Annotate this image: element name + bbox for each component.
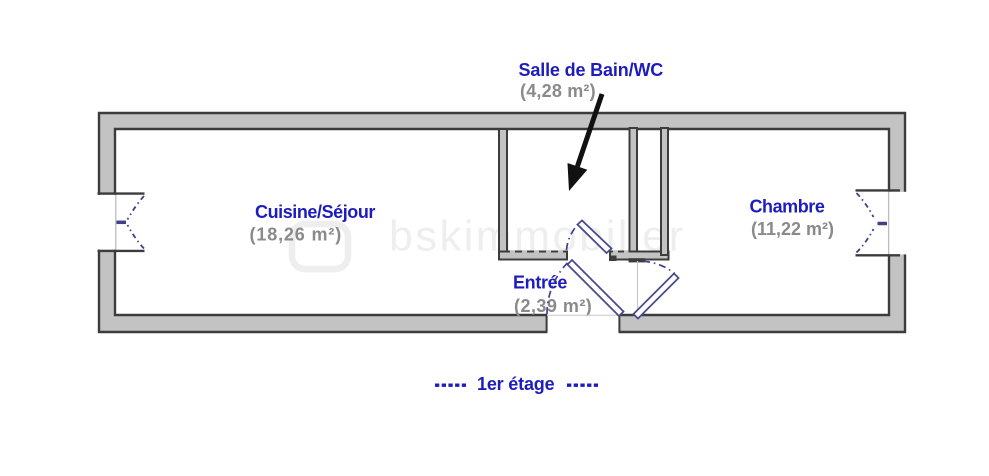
svg-text:(11,22 m²): (11,22 m²) (751, 219, 834, 239)
svg-text:(2,39 m²): (2,39 m²) (514, 296, 592, 316)
svg-text:Cuisine/Séjour: Cuisine/Séjour (255, 202, 375, 222)
svg-text:Entrée: Entrée (513, 273, 567, 293)
svg-text:(4,28 m²): (4,28 m²) (520, 81, 596, 101)
svg-text:Salle de Bain/WC: Salle de Bain/WC (519, 60, 664, 80)
svg-text:Chambre: Chambre (750, 197, 825, 217)
svg-text:1er étage: 1er étage (477, 374, 555, 394)
svg-text:(18,26 m²): (18,26 m²) (250, 225, 343, 245)
